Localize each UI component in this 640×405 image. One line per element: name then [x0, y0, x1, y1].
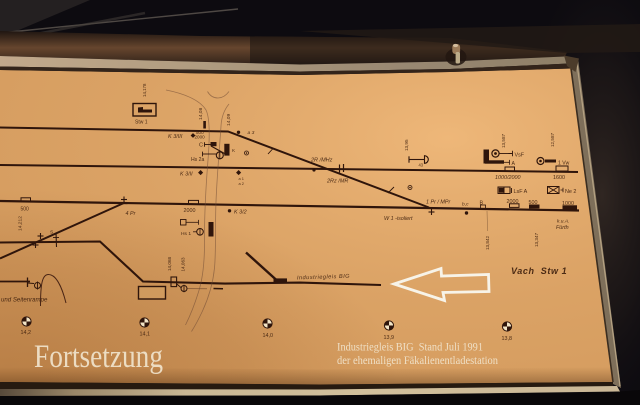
- svg-text:13,587: 13,587: [501, 134, 506, 148]
- svg-text:Industriegleis BIG Stand Juli: Industriegleis BIG Stand Juli 1991: [337, 342, 483, 354]
- svg-text:14,09: 14,09: [226, 113, 232, 126]
- svg-text:k.u.A.: k.u.A.: [557, 219, 570, 225]
- svg-text:13,9: 13,9: [384, 335, 395, 341]
- svg-text:Fürth: Fürth: [556, 225, 569, 231]
- svg-text:2Rz /MR: 2Rz /MR: [326, 179, 348, 185]
- svg-text:Hs 1: Hs 1: [181, 231, 191, 237]
- svg-text:4 Pr: 4 Pr: [126, 211, 136, 217]
- svg-text:14,0: 14,0: [263, 333, 274, 339]
- svg-text:C: C: [199, 143, 203, 149]
- svg-text:14,1: 14,1: [140, 332, 151, 338]
- svg-text:2000: 2000: [184, 208, 196, 214]
- svg-text:43: 43: [419, 163, 424, 168]
- svg-text:13,8: 13,8: [502, 336, 513, 342]
- svg-text:1600: 1600: [553, 175, 565, 181]
- svg-text:Vach Stw 1: Vach Stw 1: [511, 266, 567, 276]
- svg-text:K 3/2: K 3/2: [234, 210, 247, 216]
- svg-text:14,212: 14,212: [18, 216, 24, 231]
- svg-text:2000: 2000: [195, 135, 206, 140]
- svg-text:2R /MHz: 2R /MHz: [310, 158, 333, 164]
- svg-text:14,08: 14,08: [198, 107, 204, 120]
- svg-text:13,95: 13,95: [404, 139, 409, 151]
- svg-text:13,842: 13,842: [485, 236, 490, 250]
- svg-text:der ehemaligen Fäkalienentlade: der ehemaligen Fäkalienentladestation: [337, 355, 498, 367]
- svg-text:VsF: VsF: [515, 153, 525, 159]
- svg-text:13,347: 13,347: [534, 233, 539, 247]
- svg-text:14,2: 14,2: [21, 330, 32, 336]
- svg-text:a 2: a 2: [239, 181, 244, 186]
- svg-text:Ne 2: Ne 2: [565, 189, 576, 195]
- svg-text:a 3: a 3: [248, 130, 255, 136]
- svg-text:Hs 2a: Hs 2a: [191, 157, 204, 163]
- svg-text:500: 500: [21, 207, 30, 213]
- svg-text:1 Pr / MPr: 1 Pr / MPr: [426, 200, 450, 206]
- svg-text:14,068: 14,068: [167, 257, 172, 271]
- svg-text:1000/2000: 1000/2000: [495, 175, 520, 181]
- svg-text:Fortsetzung: Fortsetzung: [34, 339, 163, 375]
- svg-text:Stw 1: Stw 1: [135, 120, 148, 126]
- svg-text:14,063: 14,063: [181, 257, 186, 271]
- svg-text:A: A: [512, 161, 516, 167]
- svg-text:b,c: b,c: [462, 202, 469, 208]
- svg-text:und Seitenrampe: und Seitenrampe: [1, 297, 48, 304]
- svg-text:14,178: 14,178: [142, 83, 147, 97]
- svg-text:W 1 -isoliert: W 1 -isoliert: [384, 216, 413, 222]
- svg-text:12,587: 12,587: [550, 133, 555, 147]
- svg-text:K 3/II: K 3/II: [180, 172, 193, 178]
- svg-text:K 3/III: K 3/III: [168, 134, 183, 140]
- svg-text:LsF A: LsF A: [514, 189, 528, 195]
